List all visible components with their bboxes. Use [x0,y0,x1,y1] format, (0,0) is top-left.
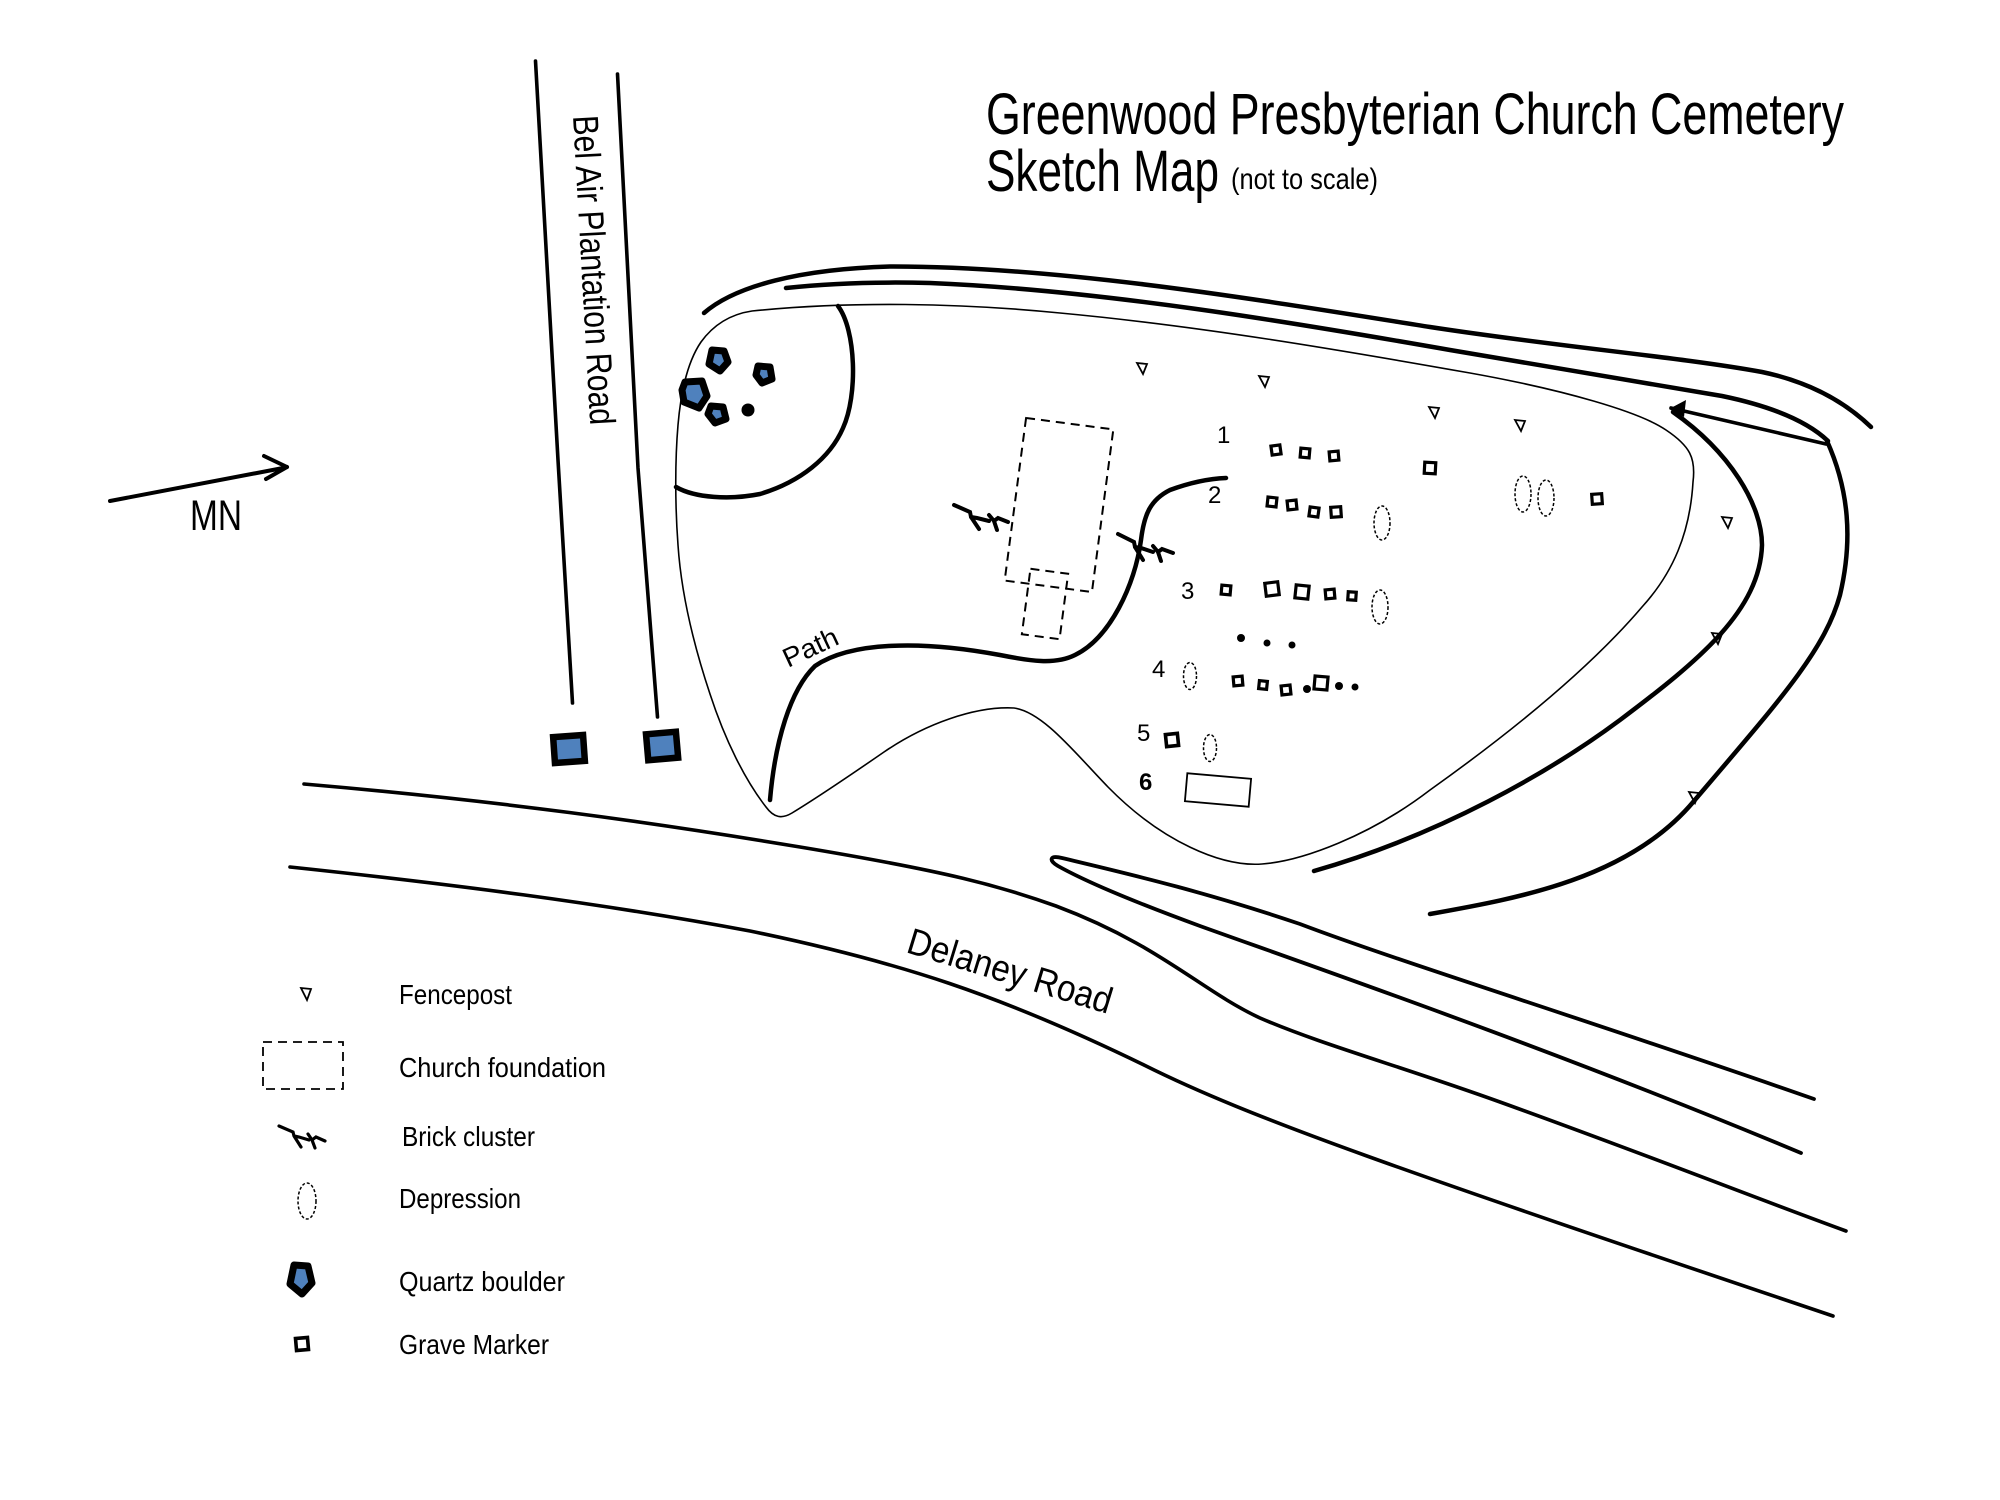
svg-text:Grave Marker: Grave Marker [399,1329,549,1360]
svg-text:Sketch Map: Sketch Map [986,139,1219,204]
svg-text:(not to scale): (not to scale) [1231,163,1378,196]
svg-text:Depression: Depression [399,1183,521,1214]
svg-text:4: 4 [1152,656,1165,683]
svg-text:Church foundation: Church foundation [399,1052,606,1083]
svg-text:5: 5 [1137,720,1150,747]
svg-text:Path: Path [778,622,843,674]
svg-text:1: 1 [1217,422,1230,449]
svg-text:3: 3 [1181,578,1194,605]
svg-text:Greenwood Presbyterian Church: Greenwood Presbyterian Church Cemetery [986,82,1844,147]
svg-text:6: 6 [1139,769,1152,796]
svg-text:Fencepost: Fencepost [399,979,512,1010]
svg-text:MN: MN [190,492,242,540]
svg-text:Quartz boulder: Quartz boulder [399,1266,565,1297]
svg-text:Bel Air Plantation Road: Bel Air Plantation Road [565,114,623,426]
svg-text:Brick cluster: Brick cluster [402,1121,535,1152]
svg-text:2: 2 [1208,482,1221,509]
